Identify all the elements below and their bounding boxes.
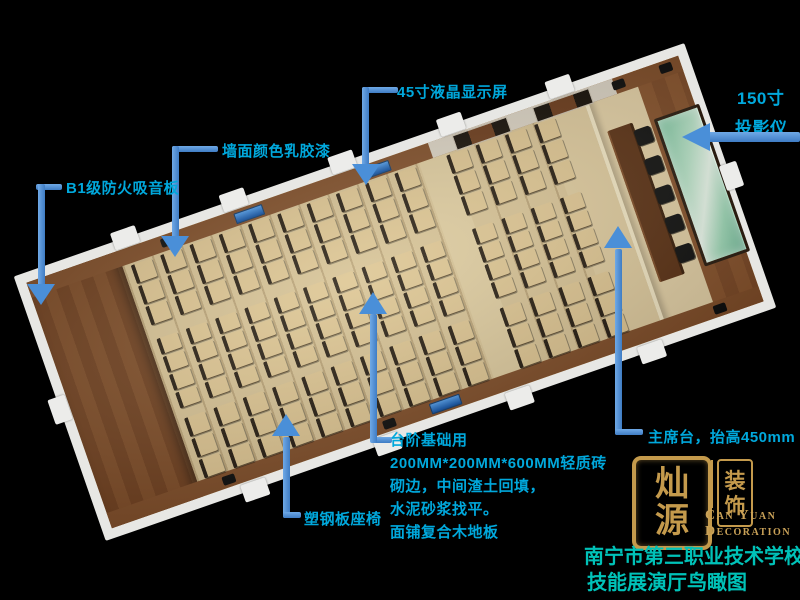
speaker bbox=[658, 62, 673, 75]
speaker bbox=[382, 417, 397, 430]
canyuan-seal-logo: 灿 源 bbox=[632, 456, 712, 550]
speaker bbox=[611, 78, 626, 91]
callout-stage-line bbox=[615, 429, 643, 435]
callout-seat-line bbox=[283, 512, 301, 518]
logo-english-line1: Can Yuan bbox=[705, 508, 776, 524]
project-title-line1: 南宁市第三职业技术学校 bbox=[584, 540, 800, 569]
hall-building bbox=[14, 43, 777, 541]
callout-acoustic-label: B1级防火吸音板 bbox=[66, 177, 179, 198]
speaker bbox=[712, 302, 727, 315]
render-canvas: 45寸液晶显示屏 150寸 投影仪 墙面颜色乳胶漆 B1级防火吸音板 台阶基础用… bbox=[0, 0, 800, 600]
callout-steps-note: 台阶基础用 200MM*200MM*600MM轻质砖 砌边，中间渣土回填， 水泥… bbox=[390, 429, 607, 544]
steps-note-line: 台阶基础用 bbox=[390, 429, 607, 452]
seal-char: 饰 bbox=[725, 493, 746, 518]
callout-projector-label-2: 投影仪 bbox=[735, 114, 788, 139]
callout-acoustic-line bbox=[36, 184, 62, 190]
seal-char: 装 bbox=[725, 468, 746, 493]
speaker bbox=[160, 235, 175, 248]
speaker bbox=[221, 473, 236, 486]
seal-char: 灿 bbox=[655, 466, 689, 503]
callout-stage-label: 主席台，抬高450mm bbox=[648, 426, 795, 447]
callout-projector-line bbox=[708, 132, 800, 142]
callout-projector-label-1: 150寸 bbox=[737, 84, 784, 109]
seal-char: 源 bbox=[655, 503, 689, 540]
callout-lcd-label: 45寸液晶显示屏 bbox=[397, 81, 508, 102]
callout-seat-label: 塑钢板座椅 bbox=[304, 508, 382, 529]
callout-paint-label: 墙面颜色乳胶漆 bbox=[222, 140, 331, 161]
logo-english-line2: Decoration bbox=[705, 524, 791, 540]
steps-note-line: 面铺复合木地板 bbox=[390, 521, 607, 544]
steps-note-line: 200MM*200MM*600MM轻质砖 bbox=[390, 452, 607, 475]
steps-note-line: 水泥砂浆找平。 bbox=[390, 498, 607, 521]
logo-divider bbox=[711, 460, 713, 508]
callout-lcd-line bbox=[362, 87, 398, 93]
project-title-line2: 技能展演厅鸟瞰图 bbox=[587, 566, 747, 595]
callout-paint-line bbox=[172, 146, 218, 152]
steps-note-line: 砌边，中间渣土回填， bbox=[390, 475, 607, 498]
decoration-seal-logo: 装 饰 bbox=[717, 459, 753, 527]
